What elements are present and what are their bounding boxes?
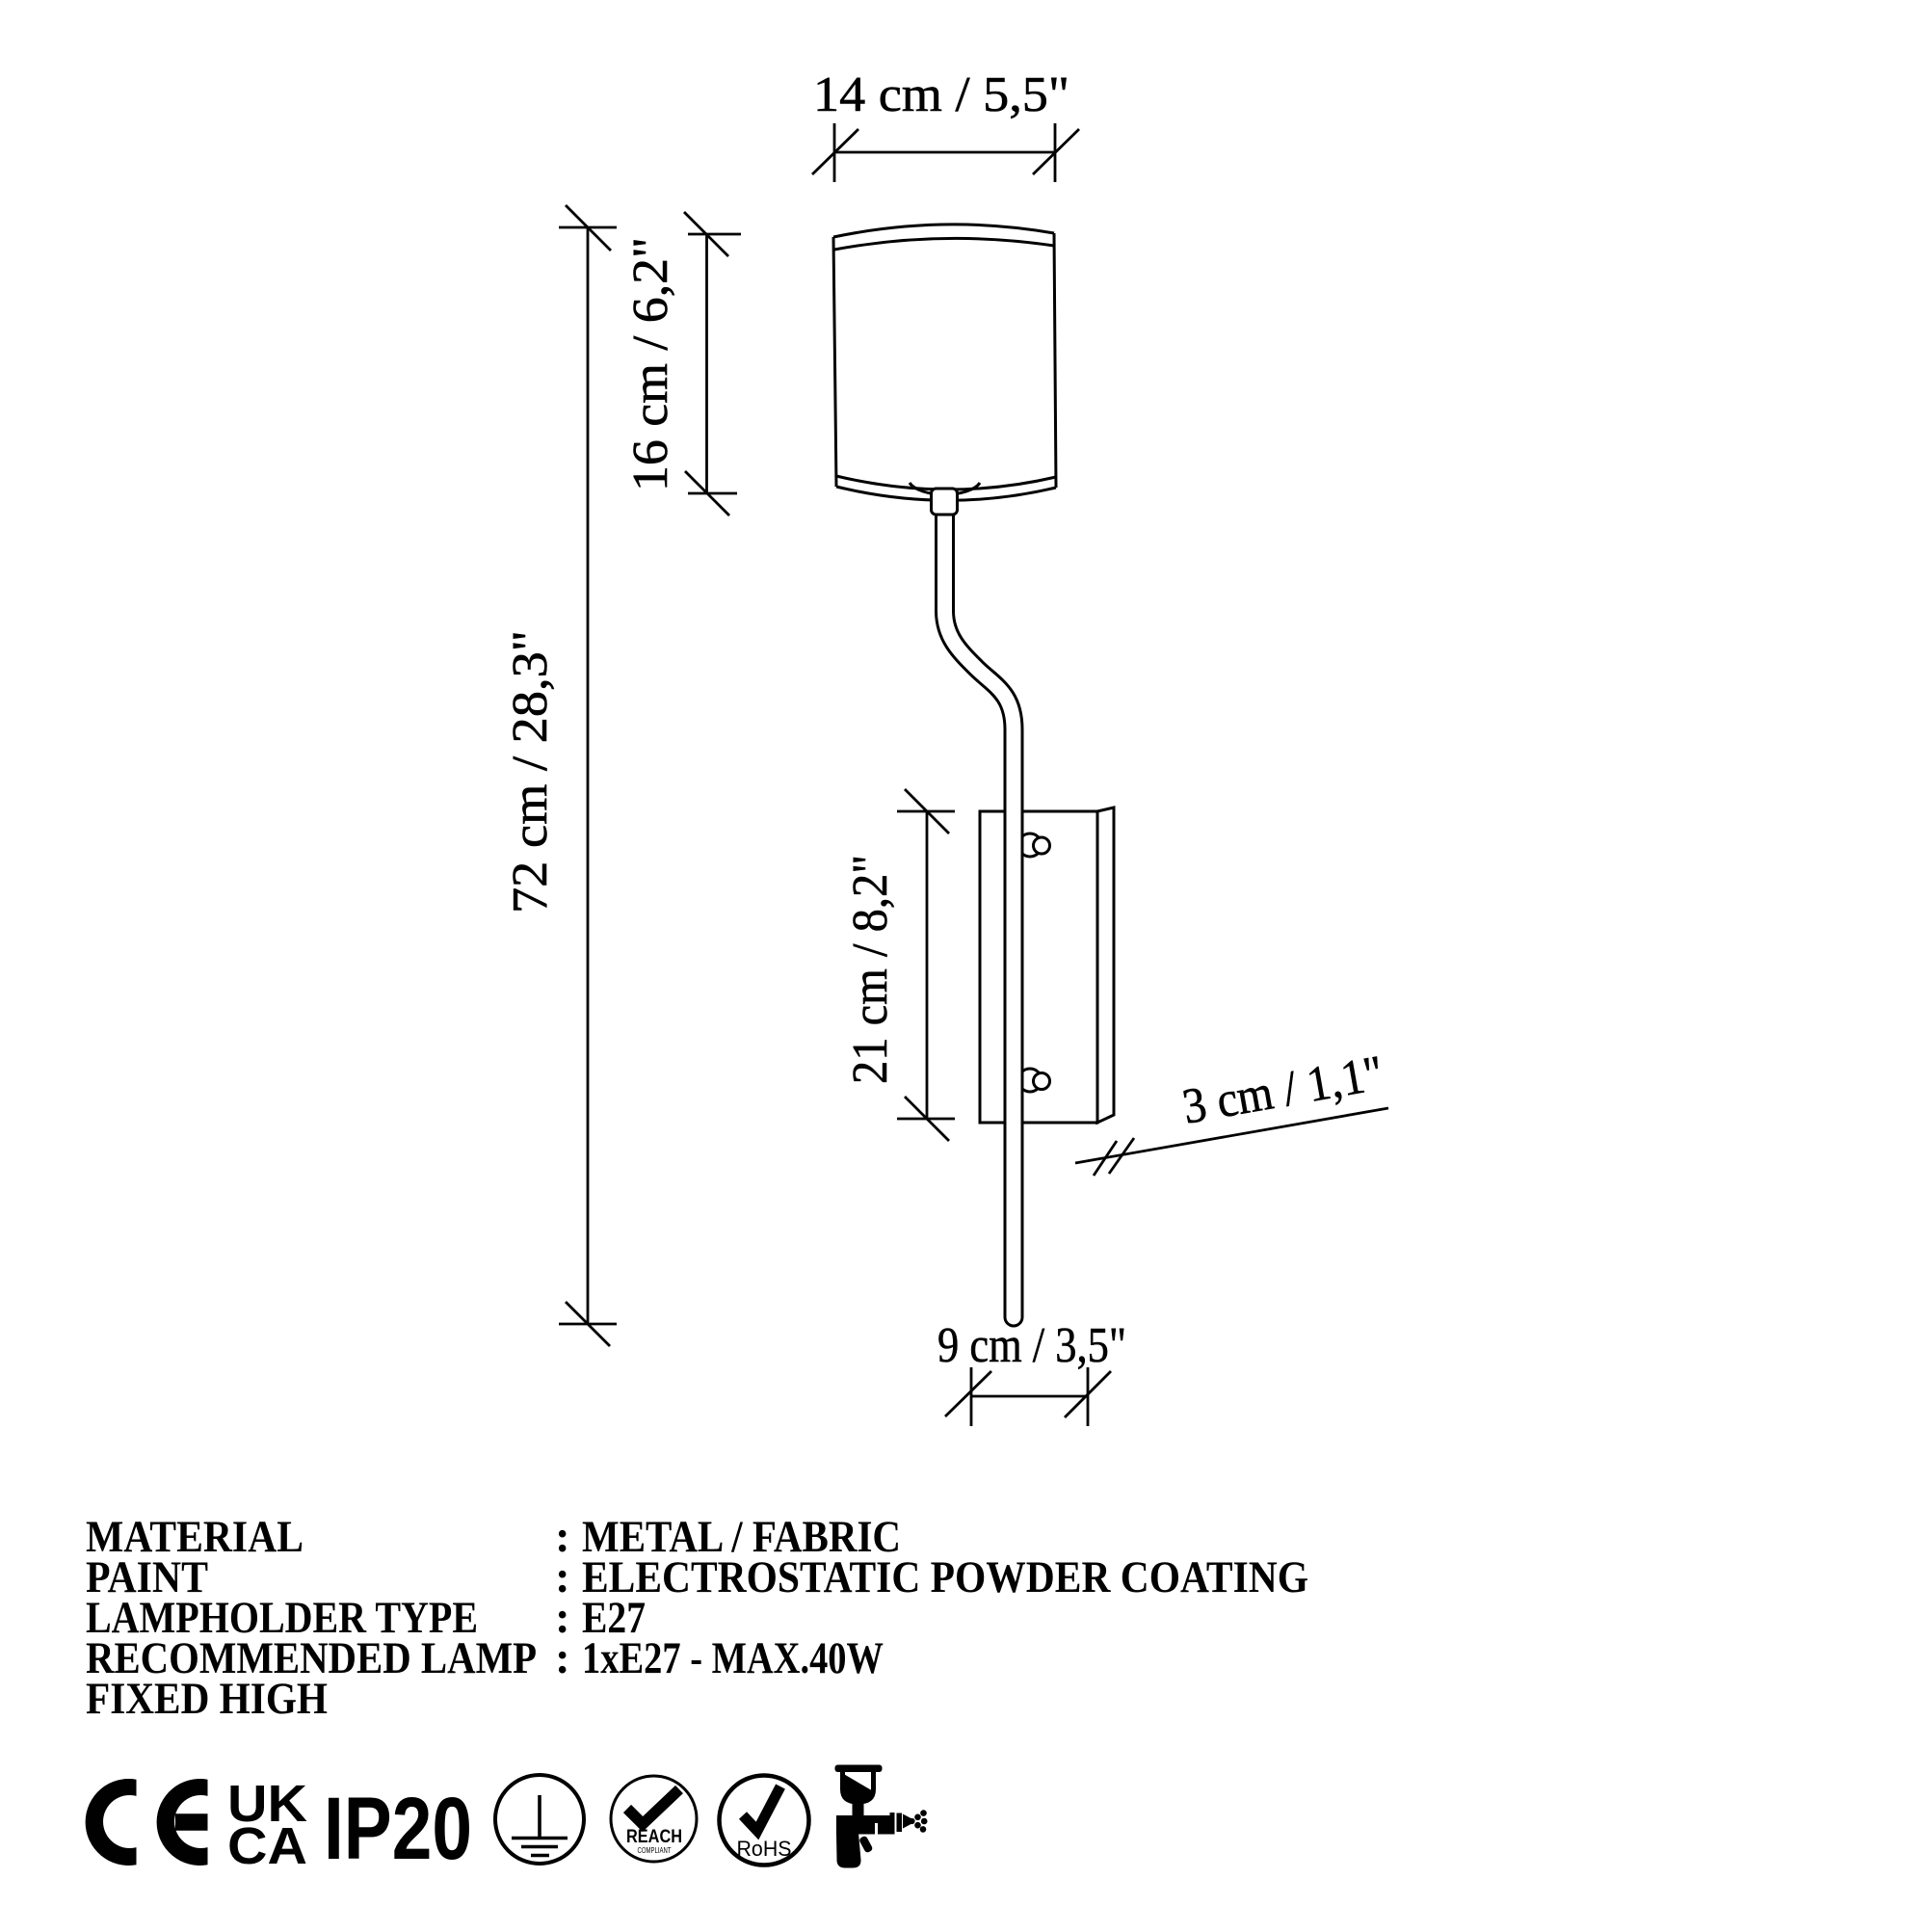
svg-text:RoHS: RoHS [737, 1837, 792, 1861]
svg-text:14 cm / 5,5": 14 cm / 5,5" [813, 67, 1069, 122]
svg-text:CA: CA [227, 1817, 307, 1875]
svg-text:IP20: IP20 [324, 1780, 472, 1878]
svg-text:REACH: REACH [626, 1827, 682, 1847]
svg-text:FIXED HIGH: FIXED HIGH [86, 1674, 328, 1724]
svg-text:72 cm / 28,3": 72 cm / 28,3" [503, 630, 558, 913]
svg-text:1xE27 - MAX.40W: 1xE27 - MAX.40W [582, 1633, 884, 1683]
svg-text:9 cm / 3,5": 9 cm / 3,5" [937, 1318, 1126, 1373]
svg-text:16 cm / 6,2": 16 cm / 6,2" [623, 237, 678, 491]
svg-text::: : [555, 1633, 570, 1683]
svg-text:ELECTROSTATIC POWDER COATING: ELECTROSTATIC POWDER COATING [582, 1552, 1308, 1602]
svg-text:21 cm / 8,2": 21 cm / 8,2" [843, 855, 898, 1084]
svg-text:COMPLIANT: COMPLIANT [638, 1846, 672, 1855]
